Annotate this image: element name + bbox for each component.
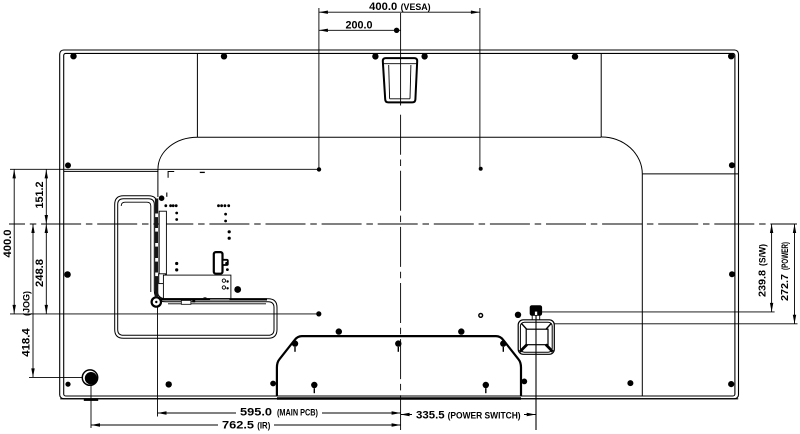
svg-text:400.0: 400.0: [2, 230, 14, 258]
svg-text:(MAIN PCB): (MAIN PCB): [277, 407, 318, 417]
svg-text:(POWER): (POWER): [780, 242, 790, 270]
svg-text:239.8: 239.8: [758, 270, 769, 297]
svg-text:400.0: 400.0: [369, 1, 397, 13]
svg-text:(IR): (IR): [257, 420, 270, 430]
svg-text:272.7: 272.7: [780, 274, 791, 301]
svg-text:418.4: 418.4: [21, 328, 33, 357]
svg-text:595.0: 595.0: [240, 407, 272, 419]
svg-text:151.2: 151.2: [34, 182, 46, 209]
svg-text:(S/W): (S/W): [758, 244, 768, 266]
svg-text:200.0: 200.0: [346, 19, 373, 31]
svg-text:(VESA): (VESA): [401, 2, 431, 12]
svg-text:762.5: 762.5: [222, 420, 254, 432]
svg-text:(POWER SWITCH): (POWER SWITCH): [448, 410, 521, 420]
svg-text:248.8: 248.8: [34, 259, 46, 287]
svg-text:(JOG): (JOG): [22, 291, 32, 316]
svg-text:335.5: 335.5: [416, 410, 445, 422]
